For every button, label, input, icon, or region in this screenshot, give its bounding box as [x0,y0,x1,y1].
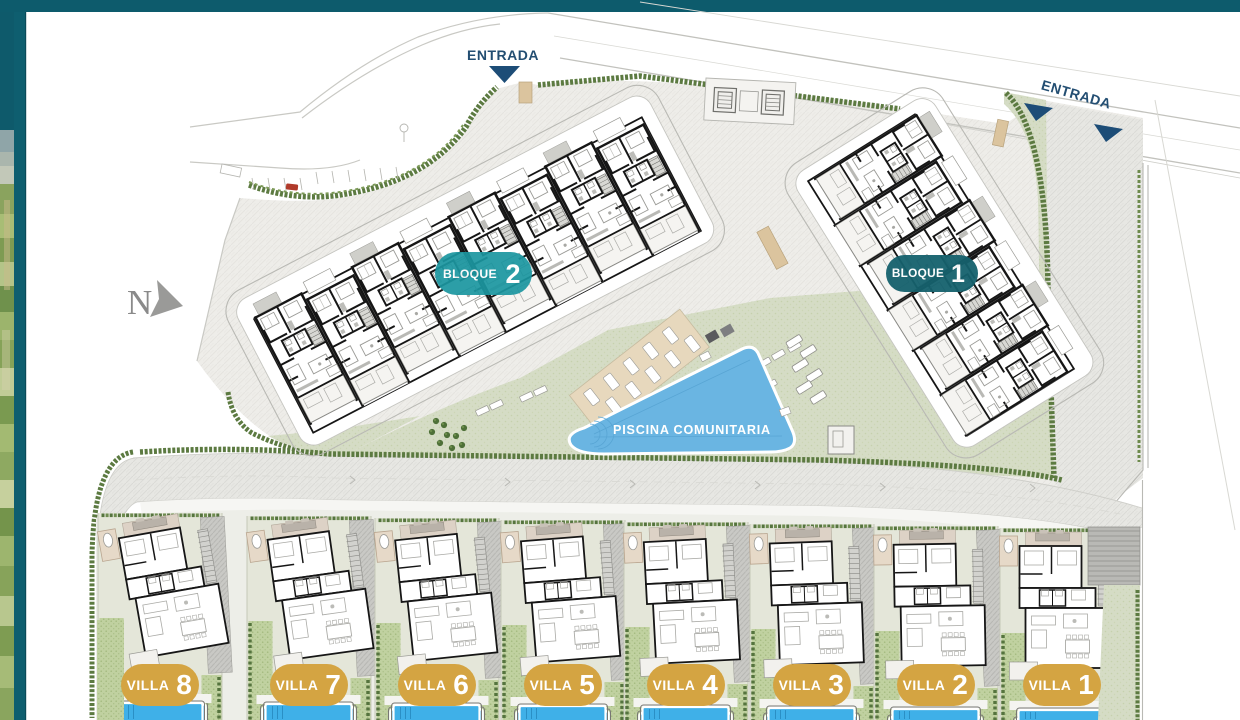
svg-text:6: 6 [453,669,469,700]
svg-text:BLOQUE: BLOQUE [892,266,944,280]
svg-text:VILLA: VILLA [903,678,946,693]
svg-text:4: 4 [702,669,718,700]
svg-text:5: 5 [579,669,595,700]
svg-text:7: 7 [325,669,341,700]
svg-text:1: 1 [951,260,965,288]
svg-text:VILLA: VILLA [1029,678,1072,693]
svg-text:BLOQUE: BLOQUE [443,267,497,281]
svg-text:VILLA: VILLA [530,678,573,693]
svg-text:VILLA: VILLA [779,678,822,693]
svg-text:VILLA: VILLA [653,678,696,693]
svg-text:N: N [127,283,152,322]
svg-text:2: 2 [505,259,520,289]
svg-text:VILLA: VILLA [127,678,170,693]
svg-text:VILLA: VILLA [276,678,319,693]
svg-text:2: 2 [952,669,968,700]
svg-text:1: 1 [1078,669,1094,700]
svg-text:PISCINA COMUNITARIA: PISCINA COMUNITARIA [613,423,771,437]
svg-text:8: 8 [176,669,192,700]
svg-text:ENTRADA: ENTRADA [467,47,539,63]
svg-text:VILLA: VILLA [404,678,447,693]
svg-text:3: 3 [828,669,844,700]
